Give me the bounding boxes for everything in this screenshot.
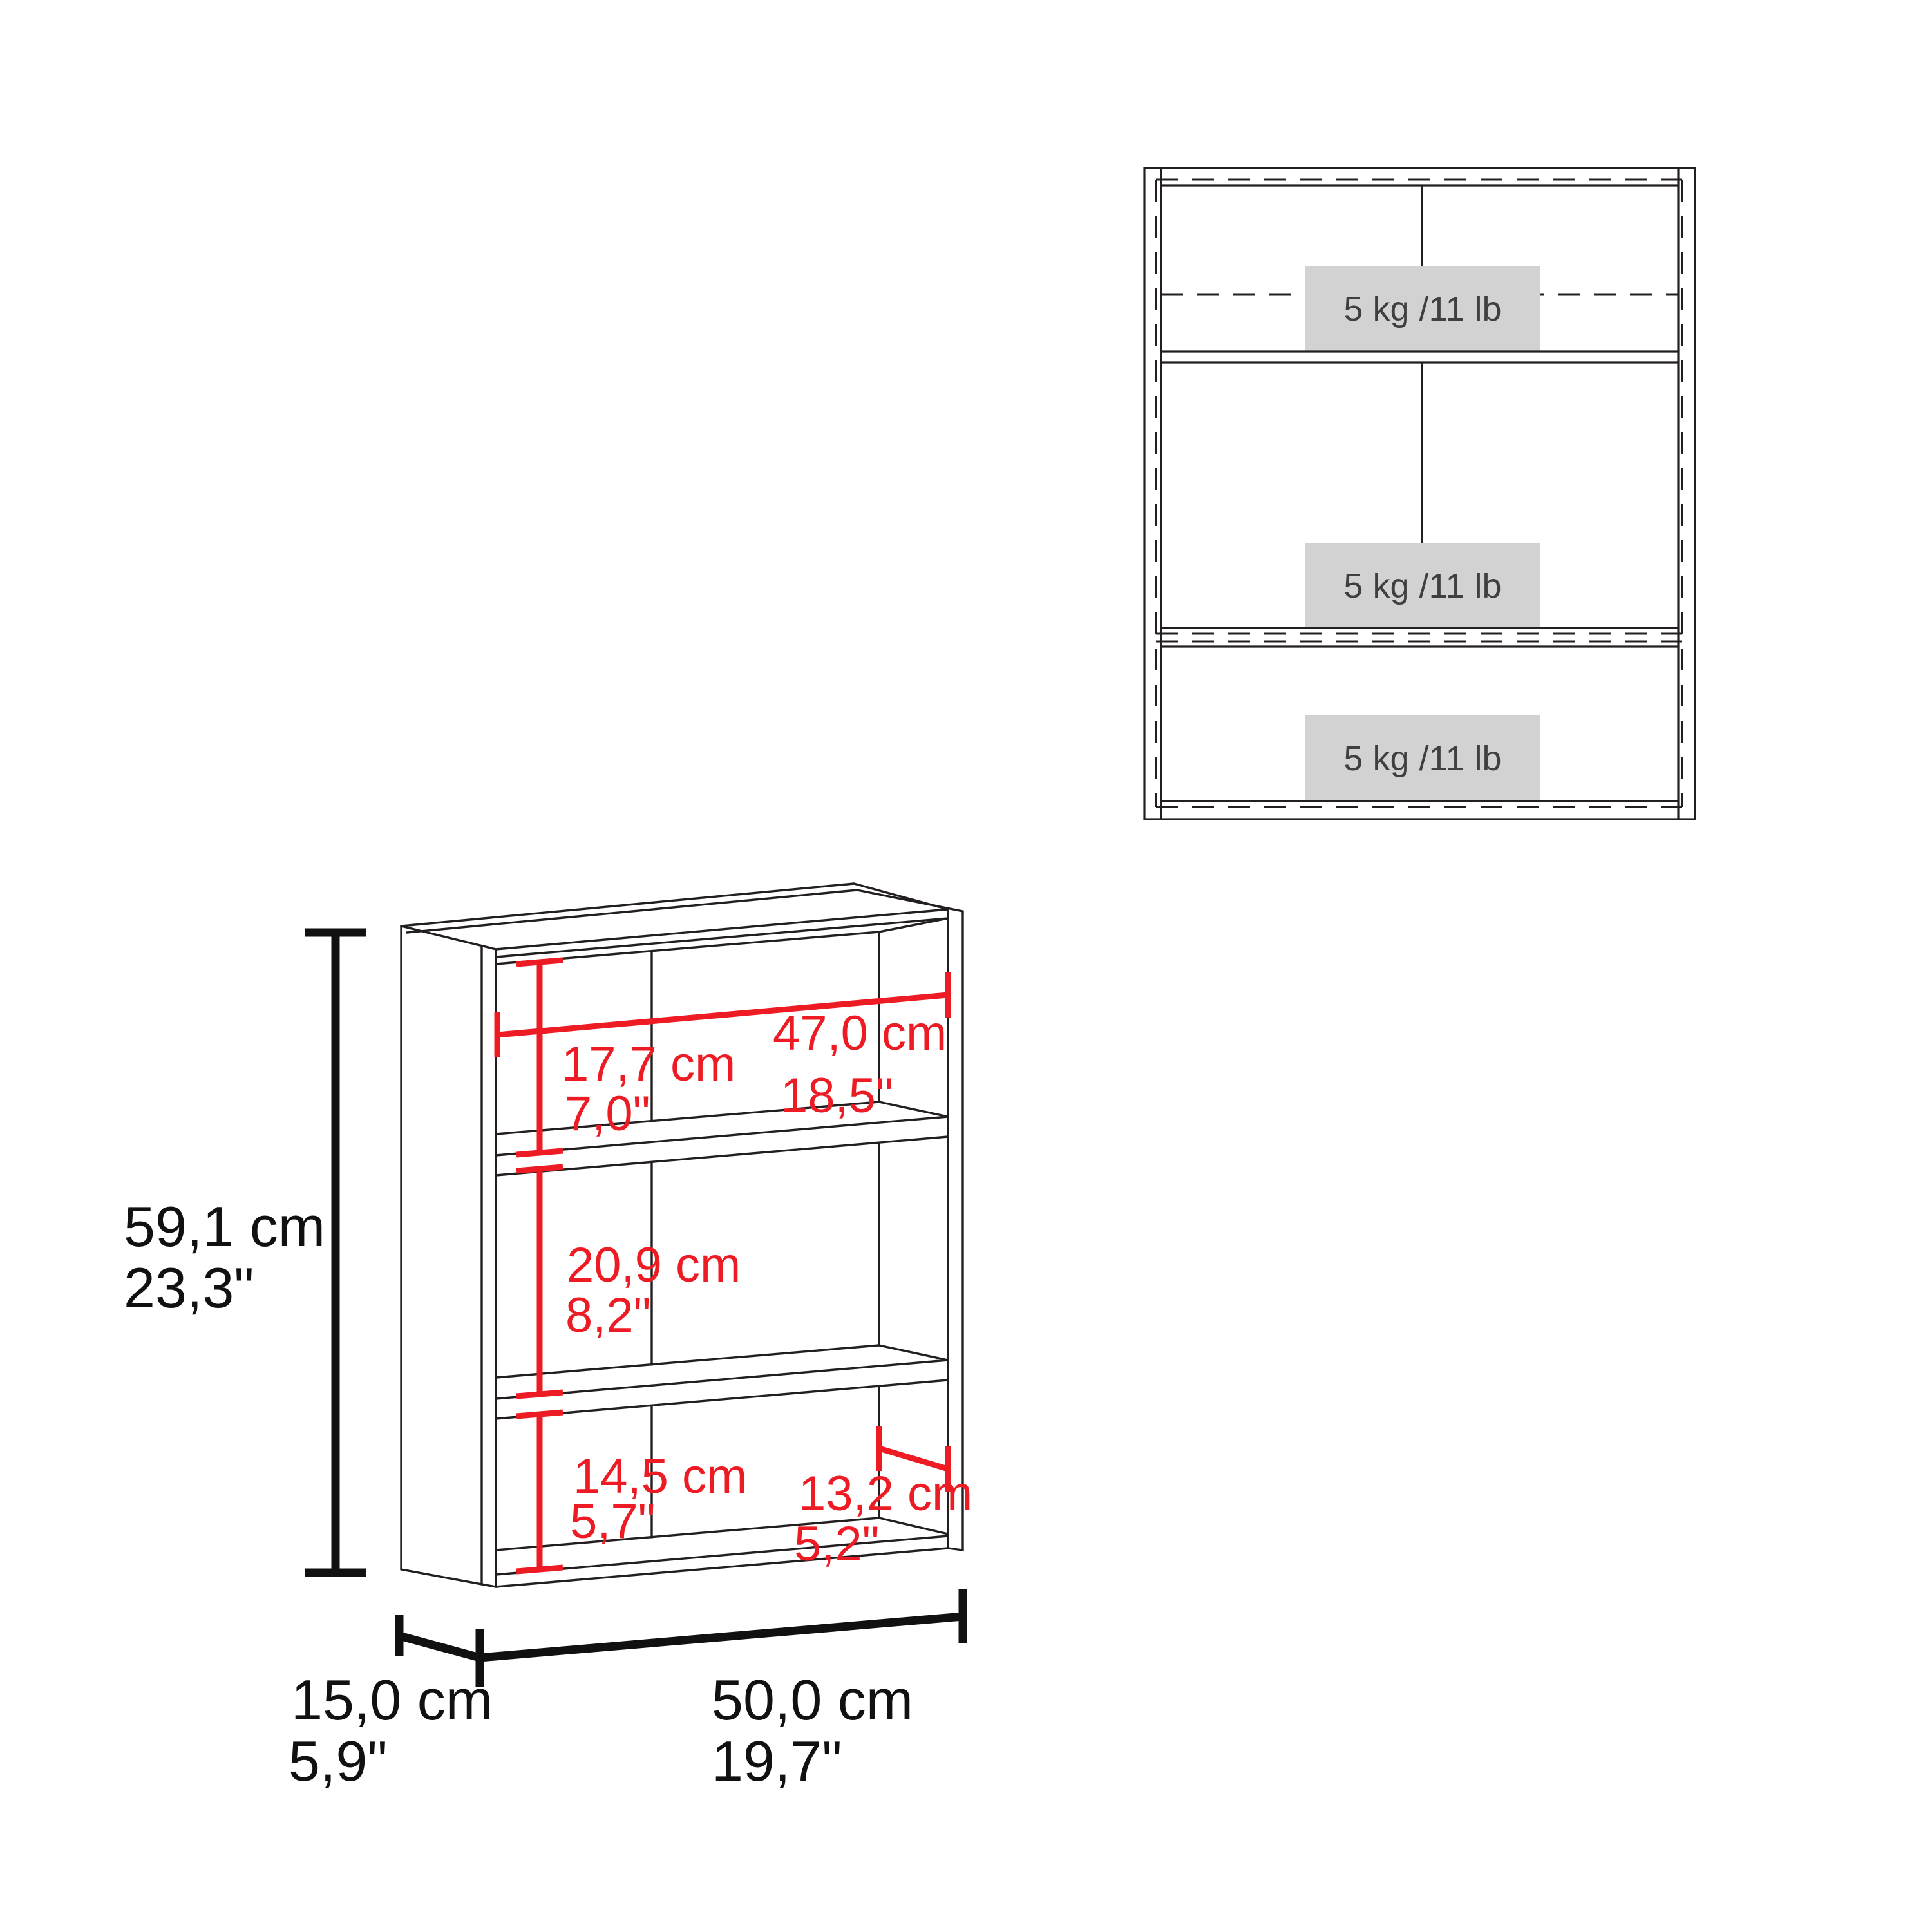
label-depth-in: 5,9" — [289, 1729, 388, 1793]
black-dimension-labels: 59,1 cm 23,3" 15,0 cm 5,9" 50,0 cm 19,7" — [124, 1195, 913, 1793]
capacity-label-top: 5 kg /11 lb — [1343, 290, 1501, 328]
diagram-canvas: 5 kg /11 lb 5 kg /11 lb 5 kg /11 lb — [0, 0, 1932, 1932]
label-inner-depth-in: 5,2" — [794, 1517, 880, 1571]
front-view: 5 kg /11 lb 5 kg /11 lb 5 kg /11 lb — [1144, 168, 1695, 819]
label-overall-width-cm: 50,0 cm — [712, 1668, 913, 1732]
red-dimension-labels: 17,7 cm 7,0" 47,0 cm 18,5" 20,9 cm 8,2" … — [562, 1006, 972, 1571]
label-inner-width-cm: 47,0 cm — [773, 1006, 947, 1061]
label-inner-width-in: 18,5" — [781, 1068, 893, 1123]
label-overall-width-in: 19,7" — [712, 1729, 842, 1793]
label-middle-compartment-in: 8,2" — [565, 1288, 651, 1343]
label-inner-depth-cm: 13,2 cm — [799, 1466, 972, 1521]
label-bottom-compartment-in: 5,7" — [570, 1494, 656, 1549]
label-top-compartment-cm: 17,7 cm — [562, 1037, 735, 1092]
label-overall-height-cm: 59,1 cm — [124, 1195, 325, 1258]
cabinet-view: 17,7 cm 7,0" 47,0 cm 18,5" 20,9 cm 8,2" … — [124, 884, 972, 1793]
label-overall-height-in: 23,3" — [124, 1256, 254, 1320]
label-top-compartment-in: 7,0" — [565, 1086, 650, 1141]
furniture-dimension-sheet: 5 kg /11 lb 5 kg /11 lb 5 kg /11 lb — [0, 0, 1932, 1932]
capacity-label-bottom: 5 kg /11 lb — [1343, 739, 1501, 778]
label-depth-cm: 15,0 cm — [291, 1668, 493, 1732]
label-middle-compartment-cm: 20,9 cm — [567, 1238, 741, 1293]
capacity-label-middle: 5 kg /11 lb — [1343, 567, 1501, 605]
